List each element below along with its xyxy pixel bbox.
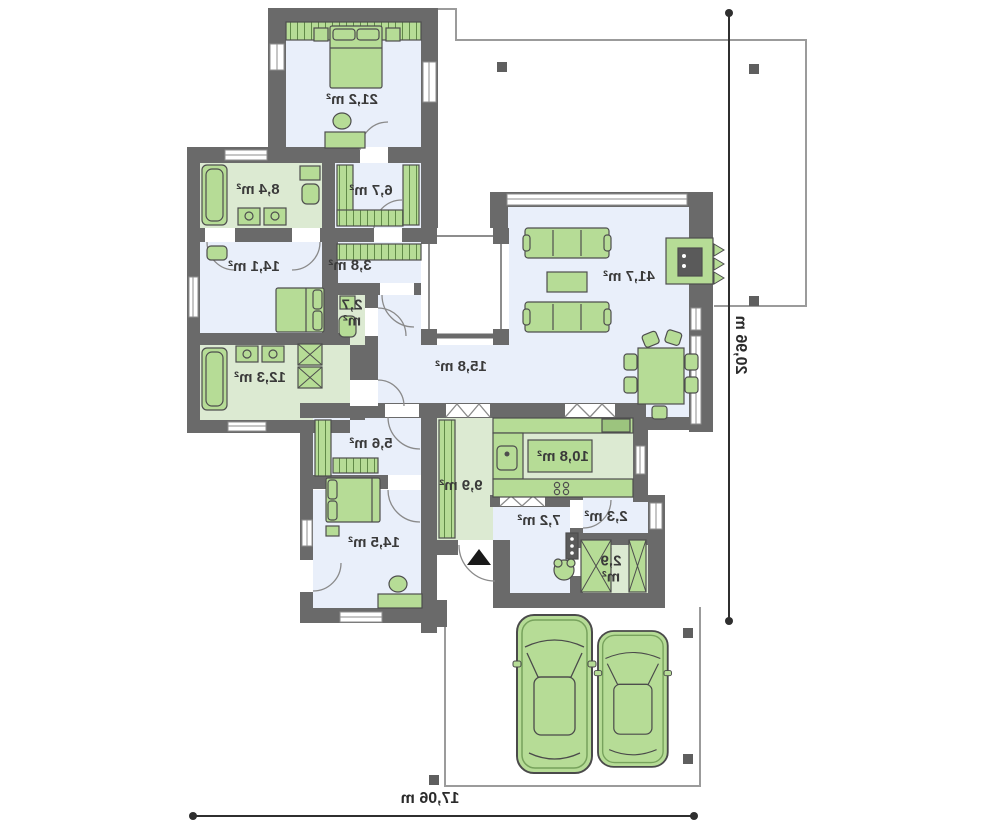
room-label-bedroom-1: 21,2 m²	[326, 92, 378, 108]
room-label-bathroom-1: 8,4 m²	[236, 182, 279, 198]
room-label-kitchen: 10,8 m²	[537, 449, 589, 465]
boiler	[566, 533, 578, 559]
fireplace	[666, 238, 724, 284]
room-label-wardrobe-1: 6,7 m²	[349, 183, 392, 199]
room-label-pantry: 2,3 m²	[584, 509, 627, 525]
atrium	[421, 228, 509, 345]
room-label-wardrobe-2: 5,6 m²	[349, 436, 392, 452]
floor-plan-drawing	[0, 0, 1000, 822]
room-label-utility: 2,9 m²	[594, 553, 628, 585]
dimension-label-depth: 20,96 m	[731, 316, 749, 375]
room-label-hall: 15,8 m²	[435, 359, 487, 375]
sofa-1	[523, 228, 611, 258]
room-label-bathroom-2: 12,3 m²	[234, 370, 286, 386]
room-label-bedroom-3: 14,5 m²	[348, 535, 400, 551]
floor-plan-canvas: 21,2 m² 8,4 m² 6,7 m² 14,1 m² 3,8 m² 2,7…	[0, 0, 1000, 822]
dimension-label-width: 17,06 m	[401, 790, 460, 808]
sofa-2	[523, 302, 611, 332]
room-label-entry: 9,9 m²	[439, 478, 482, 494]
room-label-wc: 2,7 m²	[335, 297, 369, 329]
car-2	[594, 631, 671, 767]
room-floor-hall-leg	[378, 283, 421, 403]
room-label-bedroom-2: 14,1 m²	[228, 259, 280, 275]
coffee-table	[547, 272, 587, 292]
bathtub-1	[202, 165, 227, 225]
room-label-living-room: 41,7 m²	[603, 269, 655, 285]
plant	[554, 559, 575, 580]
dimension-line-horizontal	[189, 812, 698, 820]
car-1	[513, 615, 596, 773]
room-label-corridor-1: 3,8 m²	[328, 258, 371, 274]
entrance-arrow	[467, 549, 491, 565]
room-label-corridor-2: 7,2 m²	[517, 513, 560, 529]
